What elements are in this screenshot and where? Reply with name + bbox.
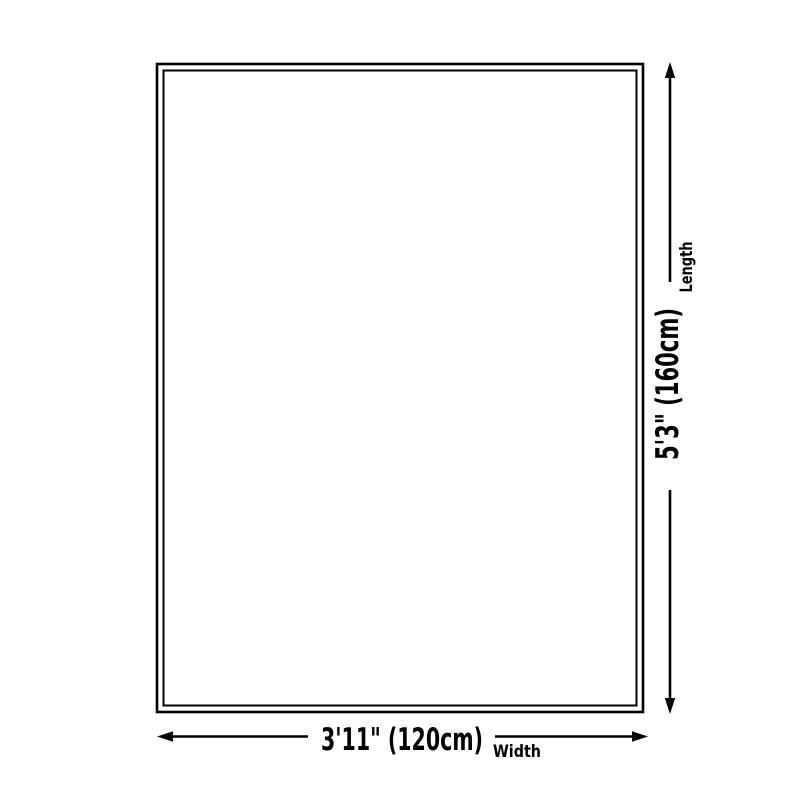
arrow-right-icon [632,731,648,741]
arrow-up-icon [665,62,675,78]
arrow-left-icon [157,731,173,741]
width-value: 3'11" (120cm) [321,722,483,758]
rug-outline-outer [157,64,643,712]
rug-outline-inner [164,71,637,706]
arrow-down-icon [665,698,675,714]
diagram-svg: 5'3" (160cm) Length 3'11" (120cm) Width [0,0,800,800]
rug-dimension-diagram: 5'3" (160cm) Length 3'11" (120cm) Width [0,0,800,800]
length-label: Length [677,242,697,293]
width-label: Width [493,742,541,762]
length-value: 5'3" (160cm) [650,308,686,460]
